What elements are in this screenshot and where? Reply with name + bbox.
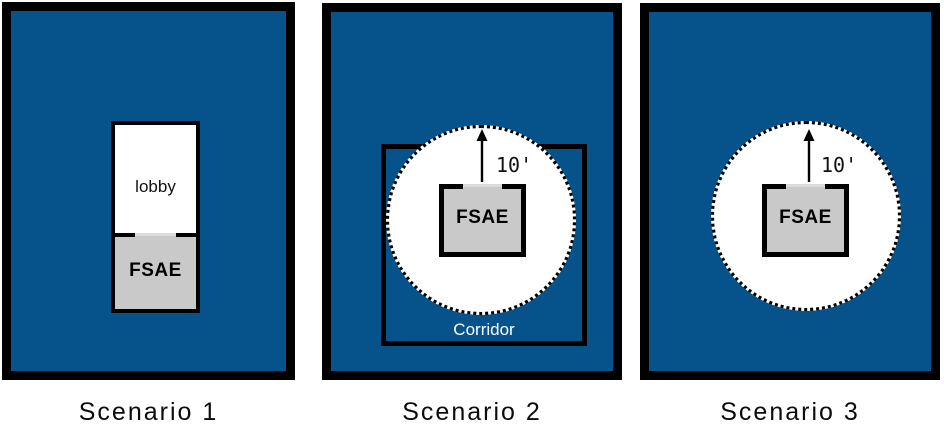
corridor-label: Corridor [381, 320, 587, 340]
door-jamb-right [176, 233, 200, 237]
scenario3-room: FSAE 10' [640, 3, 940, 380]
lobby-label: lobby [135, 177, 176, 197]
door-opening [133, 233, 178, 236]
scenario1-room: lobby FSAE [2, 2, 295, 380]
fsae-label: FSAE [456, 207, 509, 229]
up-arrow-icon [799, 129, 819, 182]
door-opening [785, 184, 827, 187]
scenario3-caption: Scenario 3 [640, 396, 940, 428]
up-arrow-icon [472, 129, 492, 182]
clearance-distance-label: 10' [496, 153, 532, 177]
figure-canvas: lobby FSAE FSAE 10' Corridor FSAE [0, 0, 944, 430]
fsae-room: FSAE [439, 184, 526, 257]
fsae-room: FSAE [762, 184, 849, 257]
clearance-distance-label: 10' [821, 153, 857, 177]
scenario1-caption: Scenario 1 [2, 396, 295, 428]
fsae-room: FSAE [111, 233, 200, 313]
lobby-room: lobby [111, 121, 200, 233]
fsae-label: FSAE [129, 260, 182, 282]
fsae-label: FSAE [779, 207, 832, 229]
door-jamb-right [825, 184, 849, 189]
door-opening [462, 184, 504, 187]
scenario2-caption: Scenario 2 [322, 396, 622, 428]
door-jamb-left [762, 184, 786, 189]
scenario2-room: FSAE 10' Corridor [322, 3, 622, 380]
door-jamb-left [111, 233, 135, 237]
door-jamb-left [439, 184, 463, 189]
door-jamb-right [502, 184, 526, 189]
